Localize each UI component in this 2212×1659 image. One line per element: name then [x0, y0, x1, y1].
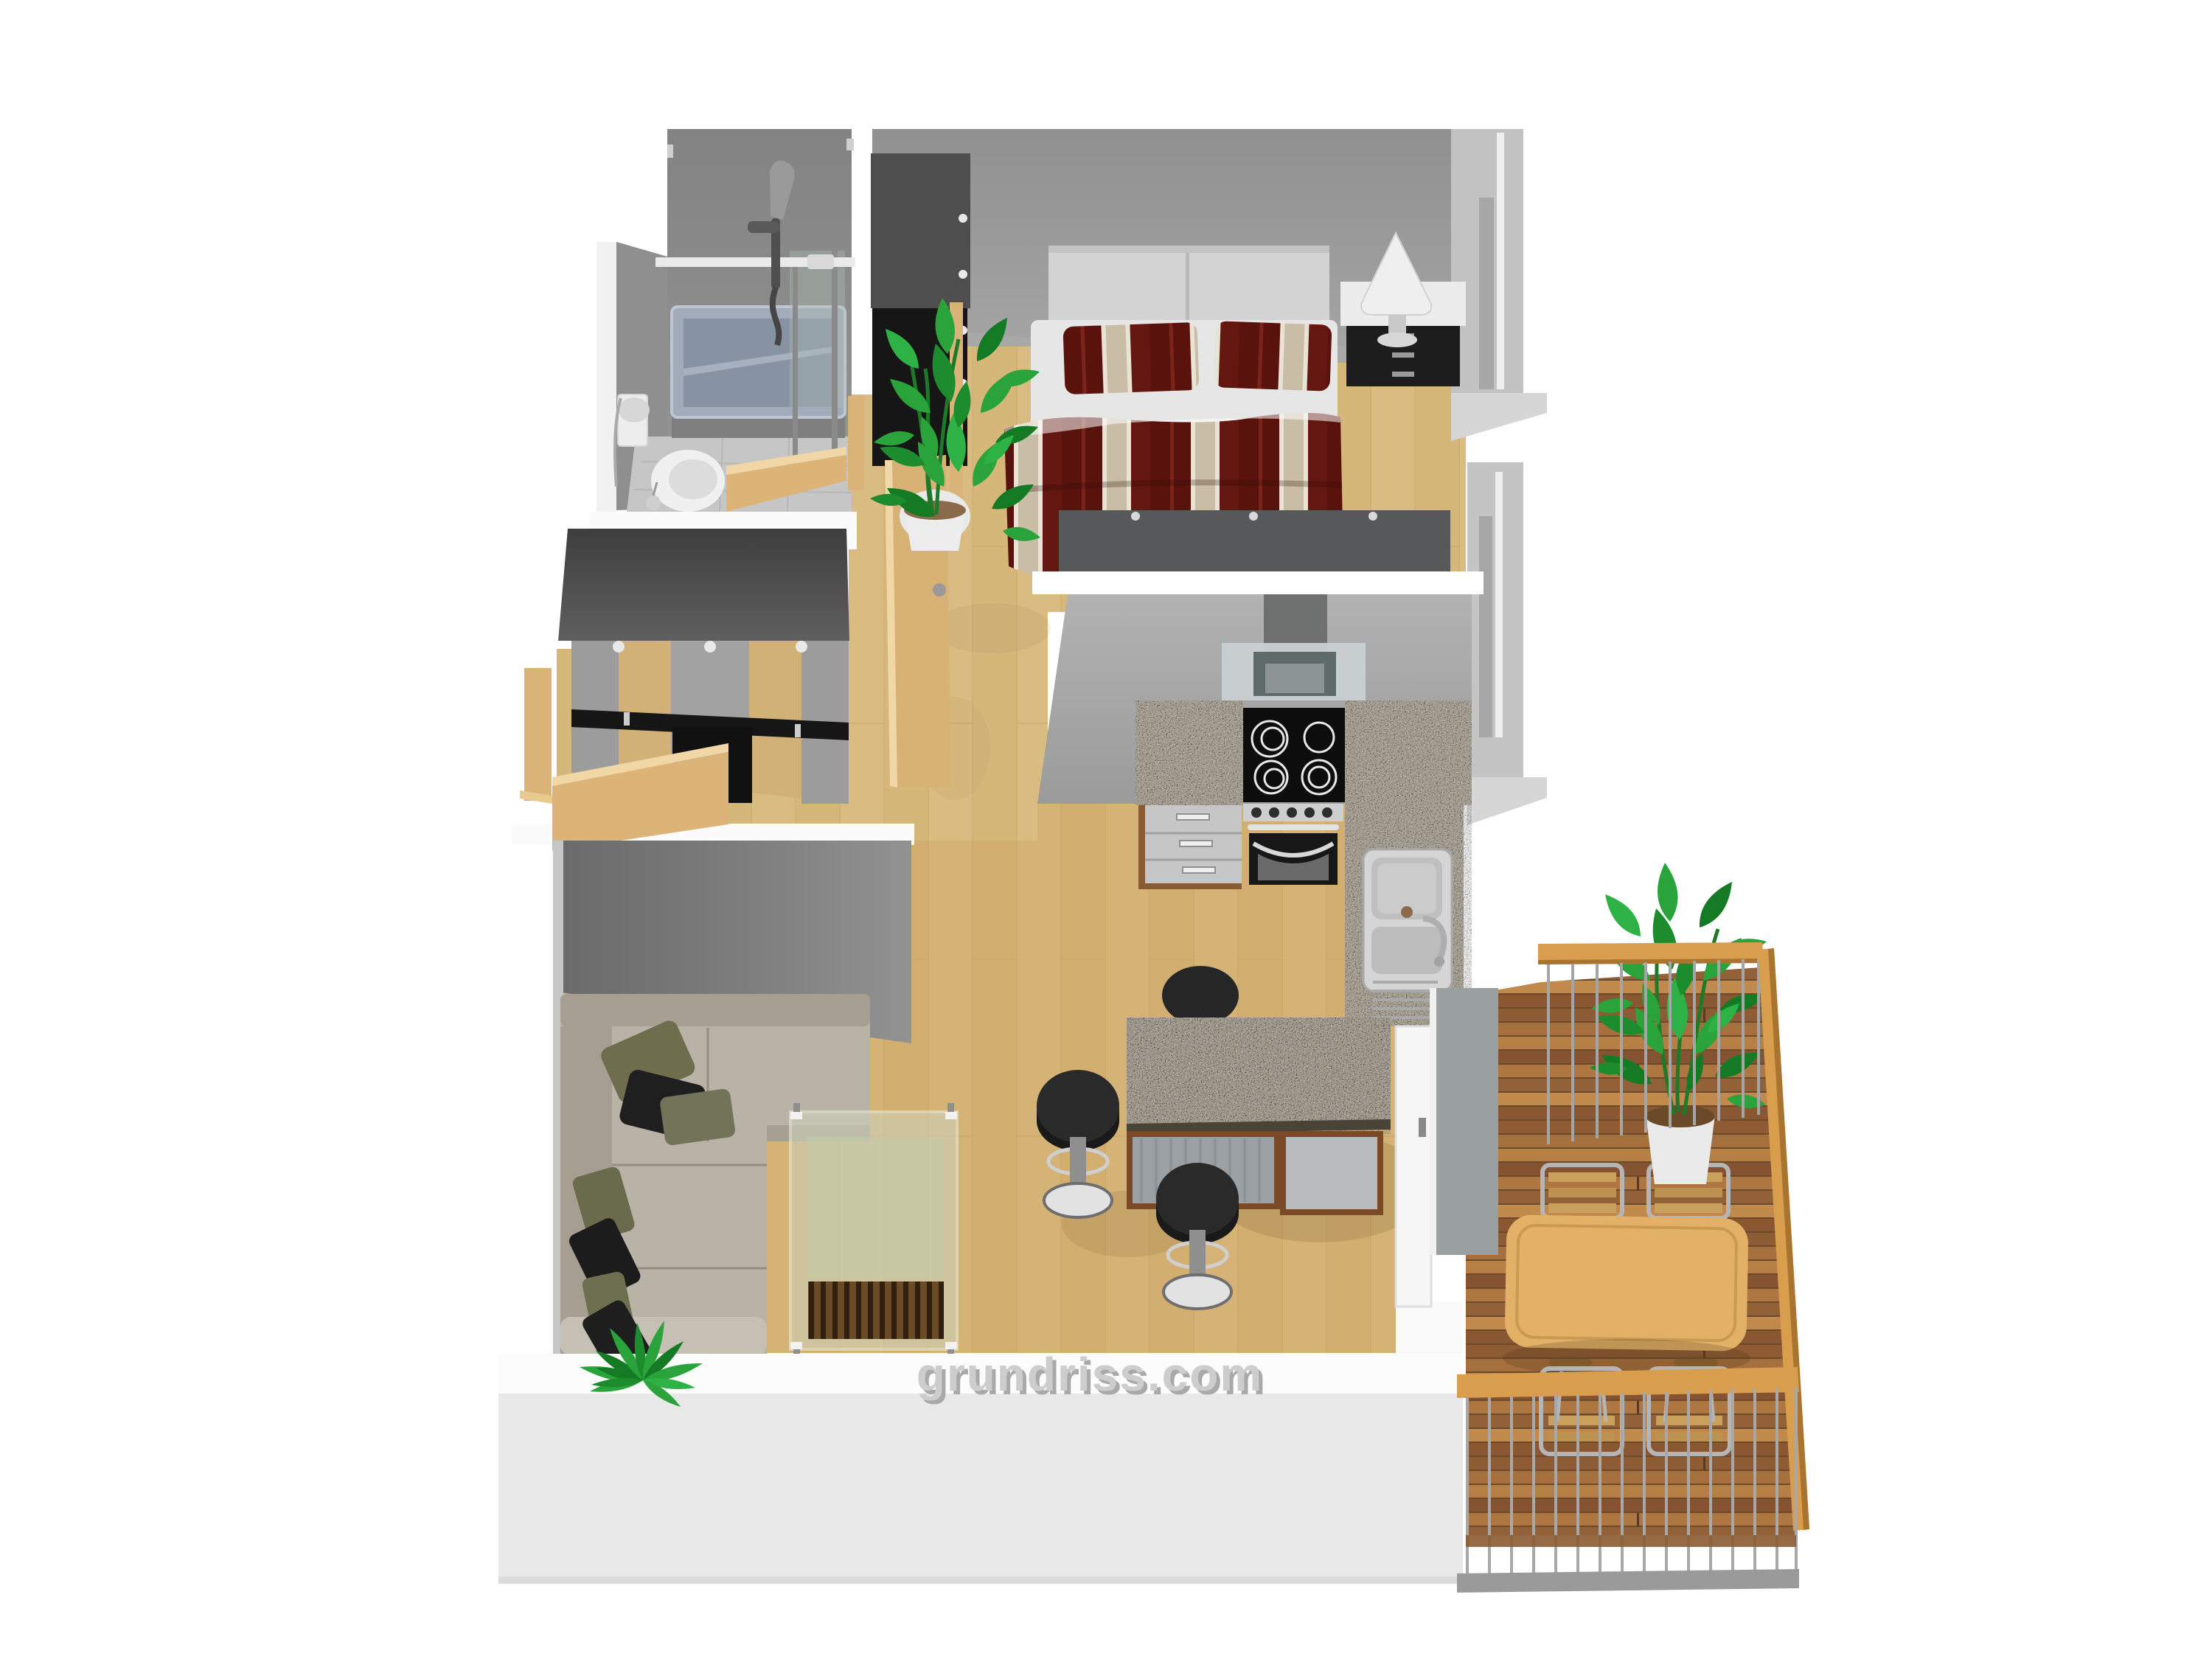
- svg-text:grundriss.com: grundriss.com: [917, 1348, 1264, 1401]
